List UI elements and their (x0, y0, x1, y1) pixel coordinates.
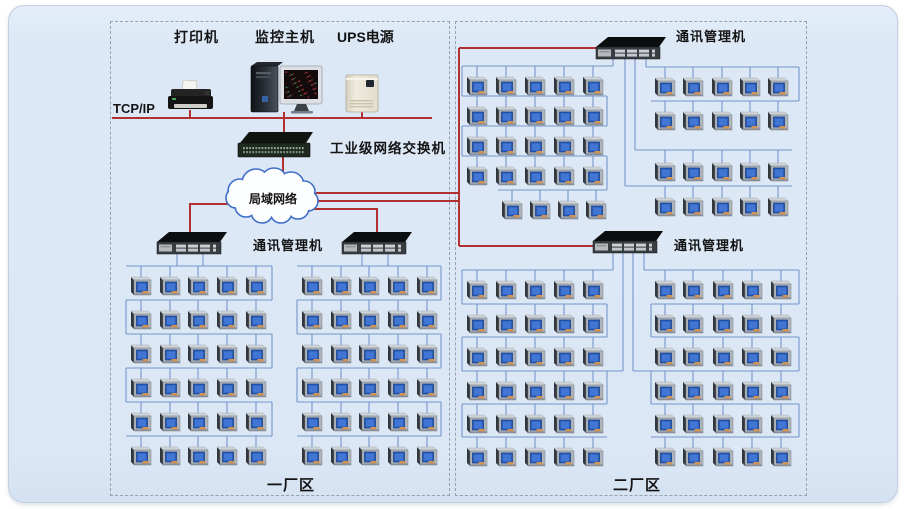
power-meter (683, 448, 703, 466)
power-meter (768, 198, 788, 216)
power-meter (160, 345, 180, 363)
power-meter (359, 413, 379, 431)
ups-label: UPS电源 (337, 27, 394, 47)
power-meter (554, 107, 574, 125)
power-meter (655, 448, 675, 466)
power-meter (713, 281, 733, 299)
power-meter (467, 137, 487, 155)
power-meter (655, 382, 675, 400)
monitoring-host-device (251, 62, 322, 114)
power-meter (768, 163, 788, 181)
power-meter (655, 315, 675, 333)
power-meter (583, 448, 603, 466)
comm-manager-label-bottom-right: 通讯管理机 (674, 235, 744, 254)
power-meter (525, 348, 545, 366)
power-meter (131, 311, 151, 329)
power-meter (742, 315, 762, 333)
power-meter (683, 112, 703, 130)
comm-manager-switch (593, 231, 663, 253)
power-meter (713, 348, 733, 366)
power-meter (496, 415, 516, 433)
factory2-label: 二厂区 (613, 474, 661, 495)
power-meter (246, 345, 266, 363)
tcpip-label: TCP/IP (113, 101, 155, 116)
power-meter (131, 379, 151, 397)
power-meter (467, 107, 487, 125)
power-meter (417, 277, 437, 295)
power-meter (683, 315, 703, 333)
power-meter (160, 311, 180, 329)
power-meter (740, 112, 760, 130)
power-meter (683, 382, 703, 400)
ups-device (346, 75, 378, 112)
power-meter (655, 163, 675, 181)
power-meter (302, 447, 322, 465)
power-meter (496, 448, 516, 466)
power-meter (655, 415, 675, 433)
power-meter (740, 78, 760, 96)
power-meter (359, 277, 379, 295)
power-meter (525, 415, 545, 433)
power-meter (417, 413, 437, 431)
power-meter (160, 413, 180, 431)
power-meter (554, 137, 574, 155)
printer-label: 打印机 (174, 27, 219, 47)
power-meter (655, 281, 675, 299)
power-meter (188, 345, 208, 363)
power-meter (554, 315, 574, 333)
power-meter (388, 311, 408, 329)
comm-manager-switch (342, 232, 412, 254)
power-meter (417, 447, 437, 465)
power-meter (246, 277, 266, 295)
printer-device (168, 80, 213, 109)
power-meter (583, 167, 603, 185)
network-topology-diagram: 打印机 监控主机 UPS电源 TCP/IP 工业级网络交换机 局域网络 通讯管理… (0, 0, 905, 509)
power-meter (160, 379, 180, 397)
power-meter (217, 277, 237, 295)
power-meter (131, 277, 151, 295)
power-meter (302, 311, 322, 329)
power-meter (496, 348, 516, 366)
power-meter (496, 167, 516, 185)
power-meter (467, 448, 487, 466)
power-meter (331, 379, 351, 397)
power-meter (359, 311, 379, 329)
power-meter (131, 413, 151, 431)
power-meter (496, 281, 516, 299)
power-meter (742, 448, 762, 466)
power-meter (530, 201, 550, 219)
power-meter (246, 447, 266, 465)
power-meter (188, 413, 208, 431)
power-meters (131, 77, 791, 466)
power-meter (742, 281, 762, 299)
power-meter (496, 107, 516, 125)
power-meter (525, 167, 545, 185)
power-meter (655, 78, 675, 96)
power-meter (331, 413, 351, 431)
power-meter (712, 198, 732, 216)
power-meter (683, 281, 703, 299)
power-meter (388, 345, 408, 363)
power-meter (188, 311, 208, 329)
industrial-switch-label: 工业级网络交换机 (330, 137, 446, 157)
power-meter (771, 382, 791, 400)
power-meter (525, 281, 545, 299)
power-meter (467, 315, 487, 333)
power-meter (467, 281, 487, 299)
power-meter (217, 311, 237, 329)
power-meter (768, 112, 788, 130)
power-meter (554, 382, 574, 400)
power-meter (331, 277, 351, 295)
power-meter (683, 78, 703, 96)
power-meter (467, 348, 487, 366)
power-meter (525, 315, 545, 333)
power-meter (160, 277, 180, 295)
power-meter (586, 201, 606, 219)
power-meter (768, 78, 788, 96)
power-meter (525, 382, 545, 400)
power-meter (683, 348, 703, 366)
power-meter (246, 311, 266, 329)
power-meter (331, 311, 351, 329)
power-meter (188, 447, 208, 465)
comm-manager-switch (596, 37, 666, 59)
diagram-canvas (0, 0, 905, 509)
power-meter (302, 345, 322, 363)
power-meter (554, 348, 574, 366)
power-meter (388, 379, 408, 397)
power-meter (302, 413, 322, 431)
power-meter (388, 413, 408, 431)
power-meter (712, 78, 732, 96)
power-meter (771, 315, 791, 333)
power-meter (302, 277, 322, 295)
power-meter (583, 77, 603, 95)
power-meter (558, 201, 578, 219)
power-meter (331, 345, 351, 363)
power-meter (554, 77, 574, 95)
power-meter (771, 415, 791, 433)
power-meter (359, 379, 379, 397)
comm-manager-label-left: 通讯管理机 (253, 235, 323, 254)
factory1-label: 一厂区 (267, 474, 315, 495)
power-meter (467, 382, 487, 400)
power-meter (246, 413, 266, 431)
power-meter (217, 345, 237, 363)
power-meter (217, 379, 237, 397)
power-meter (467, 167, 487, 185)
power-meter (740, 198, 760, 216)
host-label: 监控主机 (255, 27, 315, 47)
power-meter (655, 198, 675, 216)
power-meter (417, 379, 437, 397)
power-meter (713, 448, 733, 466)
power-meter (554, 167, 574, 185)
power-meter (417, 311, 437, 329)
power-meter (742, 348, 762, 366)
power-meter (388, 277, 408, 295)
power-meter (740, 163, 760, 181)
power-meter (583, 415, 603, 433)
power-meter (131, 345, 151, 363)
power-meter (302, 379, 322, 397)
power-meter (131, 447, 151, 465)
power-meter (554, 415, 574, 433)
comm-manager-label-top-right: 通讯管理机 (676, 26, 746, 45)
power-meter (217, 413, 237, 431)
power-meter (525, 137, 545, 155)
industrial-switch-device (238, 132, 313, 157)
comm-manager-switch (157, 232, 227, 254)
power-meter (496, 137, 516, 155)
power-meter (417, 345, 437, 363)
power-meter (583, 382, 603, 400)
power-meter (525, 77, 545, 95)
power-meter (655, 348, 675, 366)
power-meter (359, 447, 379, 465)
power-meter (554, 281, 574, 299)
power-meter (742, 415, 762, 433)
power-meter (583, 107, 603, 125)
power-meter (525, 107, 545, 125)
power-meter (502, 201, 522, 219)
power-meter (188, 277, 208, 295)
power-meter (496, 77, 516, 95)
power-meter (160, 447, 180, 465)
power-meter (713, 382, 733, 400)
power-meter (742, 382, 762, 400)
power-meter (712, 112, 732, 130)
power-meter (713, 315, 733, 333)
power-meter (388, 447, 408, 465)
power-meter (467, 77, 487, 95)
lan-label: 局域网络 (249, 190, 297, 207)
power-meter (583, 281, 603, 299)
power-meter (655, 112, 675, 130)
power-meter (683, 415, 703, 433)
power-meter (583, 137, 603, 155)
power-meter (583, 348, 603, 366)
power-meter (359, 345, 379, 363)
power-meter (467, 415, 487, 433)
power-meter (713, 415, 733, 433)
power-meter (583, 315, 603, 333)
power-meter (496, 382, 516, 400)
power-meter (188, 379, 208, 397)
power-meter (771, 348, 791, 366)
power-meter (496, 315, 516, 333)
power-meter (331, 447, 351, 465)
power-meter (246, 379, 266, 397)
power-meter (683, 198, 703, 216)
power-meter (712, 163, 732, 181)
power-meter (554, 448, 574, 466)
power-meter (771, 281, 791, 299)
power-meter (217, 447, 237, 465)
power-meter (683, 163, 703, 181)
power-meter (525, 448, 545, 466)
power-meter (771, 448, 791, 466)
